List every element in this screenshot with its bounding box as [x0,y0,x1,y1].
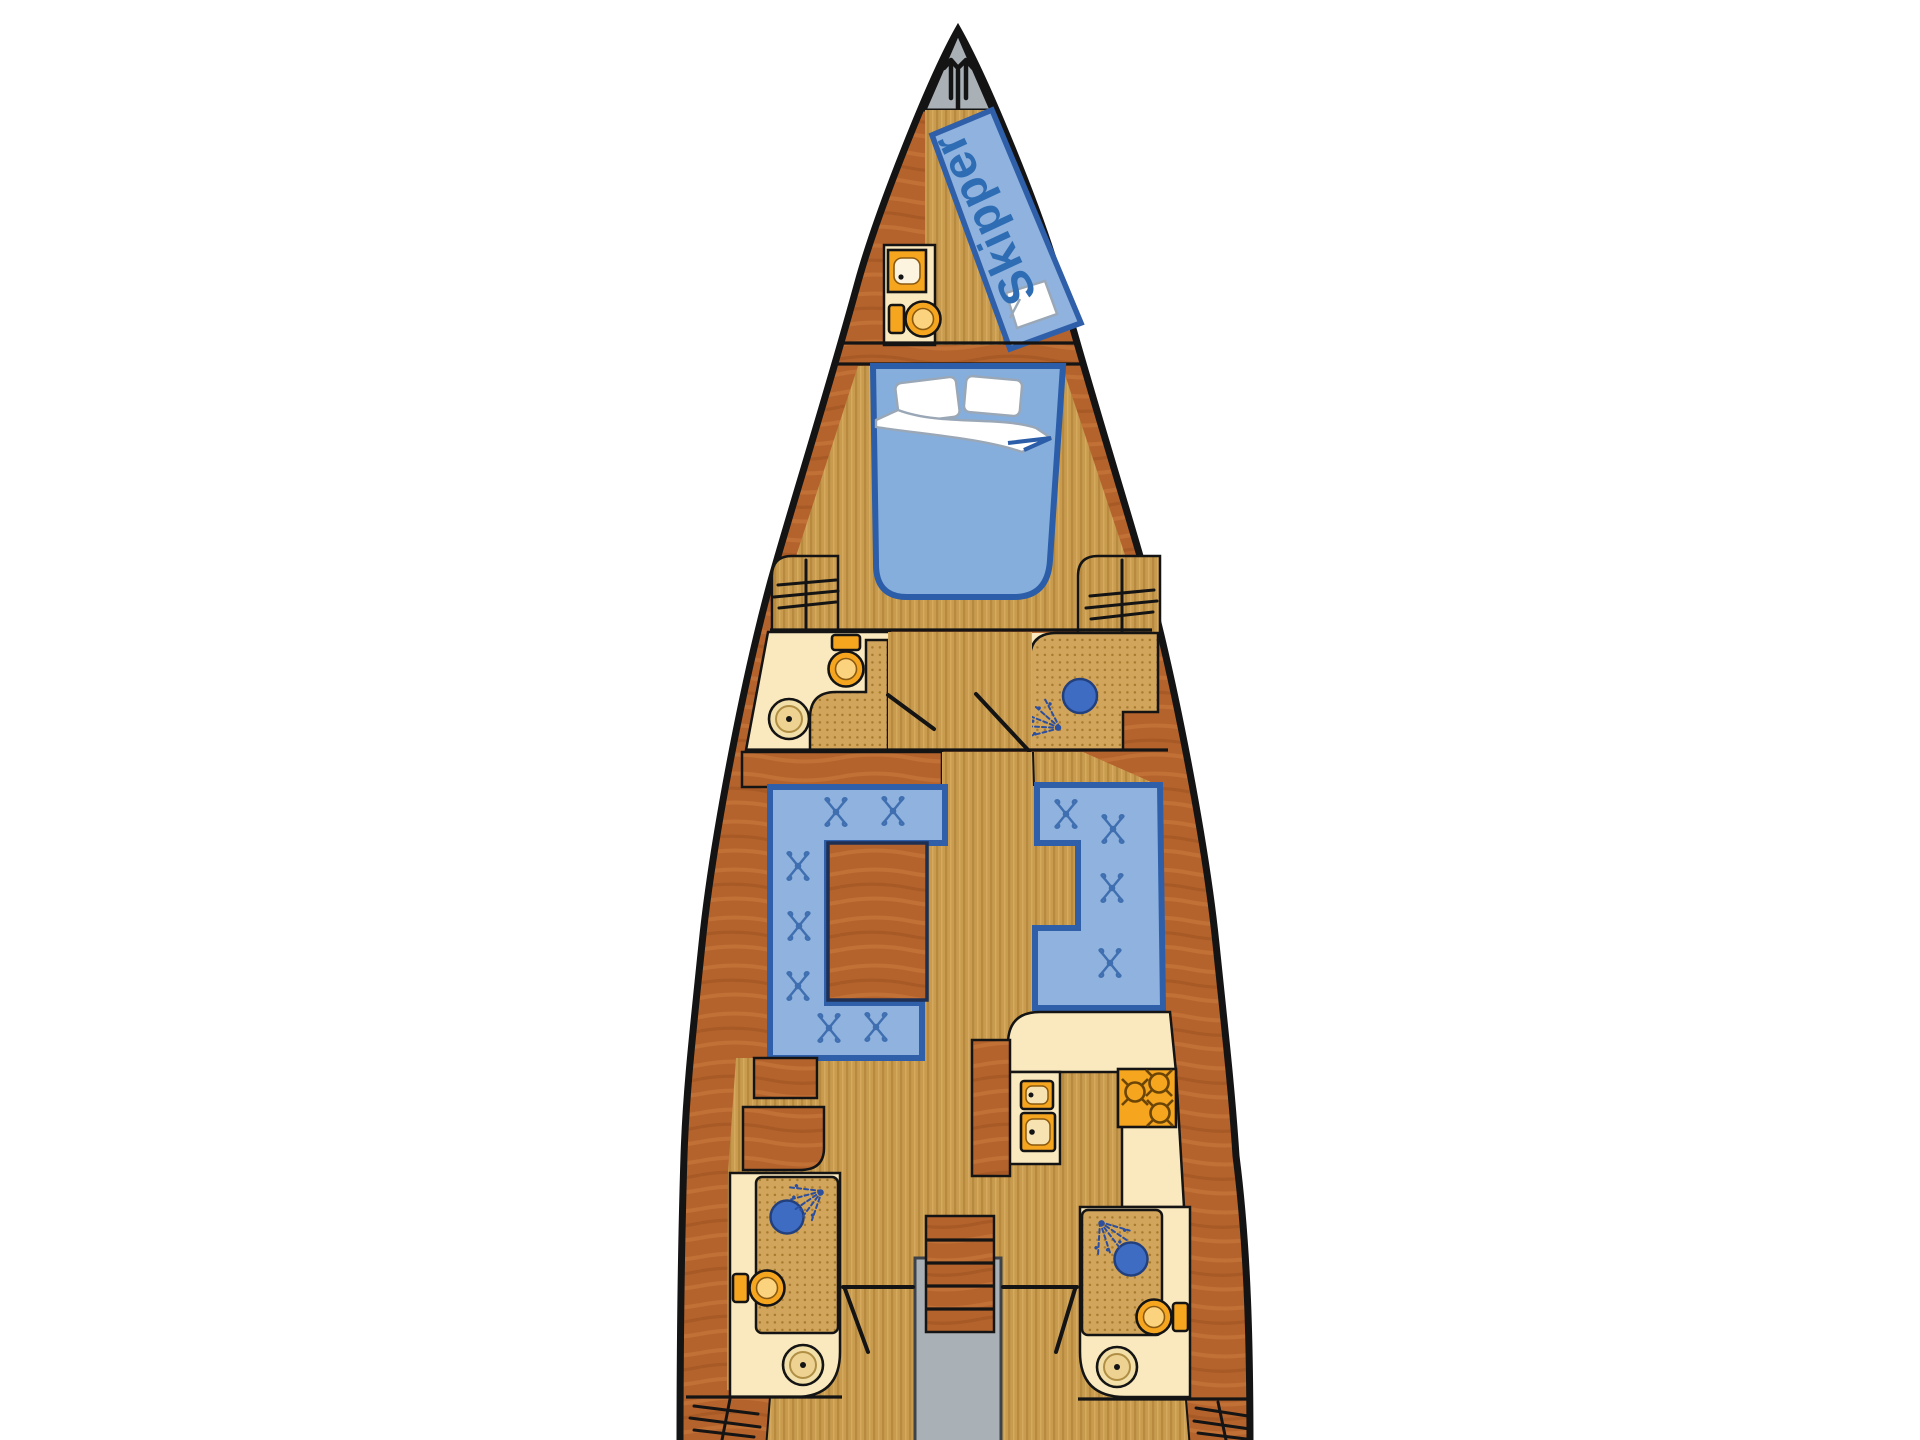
shower-mat [756,1177,838,1333]
galley-island [972,1040,1010,1176]
cabinet [743,1107,824,1170]
companionway-stairs [926,1216,994,1332]
wardrobe-port [772,556,838,632]
shower-drain-icon [1063,679,1097,713]
floorplan-canvas: Skipper [0,0,1920,1440]
washbasin-icon [783,1345,823,1385]
bed-pillow-right [964,376,1023,417]
shower-drain-icon [771,1201,804,1234]
salon-table [828,843,927,1000]
sink-icon [1021,1113,1055,1151]
washbasin-icon [769,699,809,739]
wardrobe-starboard [1078,556,1160,635]
cabinet [754,1058,817,1098]
stove-icon [1118,1069,1176,1127]
toilet-icon [1137,1300,1189,1335]
galley-counter [1008,1012,1176,1072]
aft-heads-port [730,1172,840,1397]
sofa-back-shelf [742,752,942,787]
forward-corridor [888,632,1032,751]
skipper-toilet-icon [889,302,941,337]
yacht-floorplan: Skipper [0,0,1920,1440]
toilet-icon [829,635,864,687]
washbasin-icon [1097,1347,1137,1387]
sink-icon [1021,1081,1053,1109]
skipper-sink-icon [888,250,926,292]
aft-heads-starboard [1080,1207,1190,1397]
forward-heads [746,632,890,750]
toilet-icon [733,1271,785,1306]
